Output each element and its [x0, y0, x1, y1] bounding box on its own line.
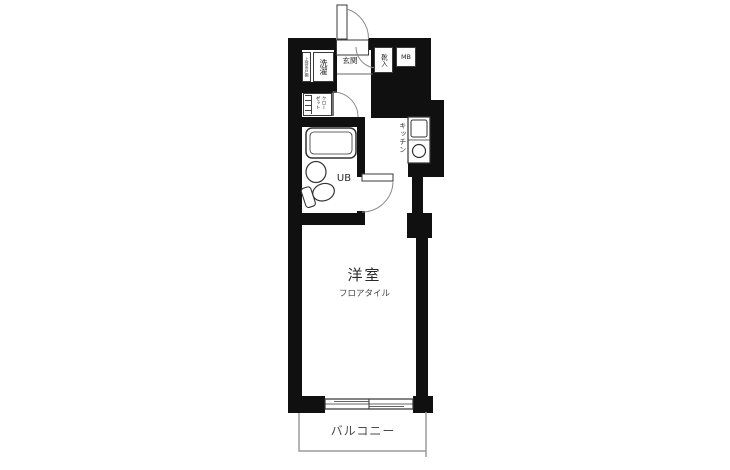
toilet-icon	[300, 179, 337, 208]
entrance-door-swing-icon	[347, 9, 369, 39]
laundry-box: 洗濯	[313, 52, 334, 82]
closet-label: クローゼット	[314, 96, 326, 113]
plan-linework	[0, 0, 730, 470]
closet-hanger-hatch	[305, 95, 312, 114]
kitchen-label: キッチン	[398, 122, 406, 154]
bath-label: UB	[333, 172, 355, 184]
laundry-label: 洗濯	[318, 59, 329, 75]
entrance-step	[337, 40, 369, 55]
shoe-box: 靴入	[374, 47, 393, 73]
entrance-label: 玄関	[337, 56, 363, 66]
laundry-shelf-label: 上部吊戸棚	[304, 57, 310, 77]
meter-box: MB	[396, 47, 416, 67]
sliding-window-icon	[325, 399, 413, 409]
meter-box-label: MB	[401, 53, 411, 61]
kitchen-unit	[408, 117, 430, 163]
main-room-label: 洋室	[322, 266, 407, 284]
bathtub-icon	[306, 128, 356, 158]
entrance-door-leaf	[337, 5, 347, 39]
closet-box: クローゼット	[303, 93, 332, 116]
main-room-floor-label: フロアタイル	[322, 289, 407, 300]
bath-door-swing-icon	[362, 181, 393, 212]
balcony-label: バルコニー	[300, 425, 426, 439]
shoe-box-label: 靴入	[379, 54, 389, 67]
floor-plan: 上部吊戸棚 洗濯 靴入 MB クローゼット 玄関 UB キッチン 洋室 フロアタ…	[0, 0, 730, 470]
bath-door-leaf	[362, 174, 393, 181]
closet-door-swing-icon	[333, 92, 358, 117]
washbasin-icon	[306, 162, 326, 183]
laundry-shelf-box: 上部吊戸棚	[302, 52, 311, 82]
